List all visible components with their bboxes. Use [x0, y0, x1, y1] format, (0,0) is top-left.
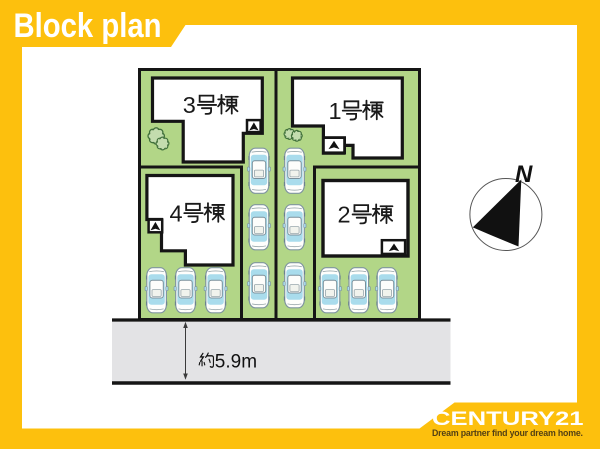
svg-text:3: 3 [183, 92, 196, 118]
svg-text:5.9m: 5.9m [215, 352, 257, 373]
svg-text:N: N [515, 161, 533, 188]
svg-text:1: 1 [329, 98, 342, 124]
svg-text:Block plan: Block plan [14, 7, 162, 45]
svg-text:2: 2 [338, 201, 351, 227]
svg-text:4: 4 [170, 201, 183, 227]
svg-text:Dream partner find your dream: Dream partner find your dream home. [432, 428, 583, 438]
